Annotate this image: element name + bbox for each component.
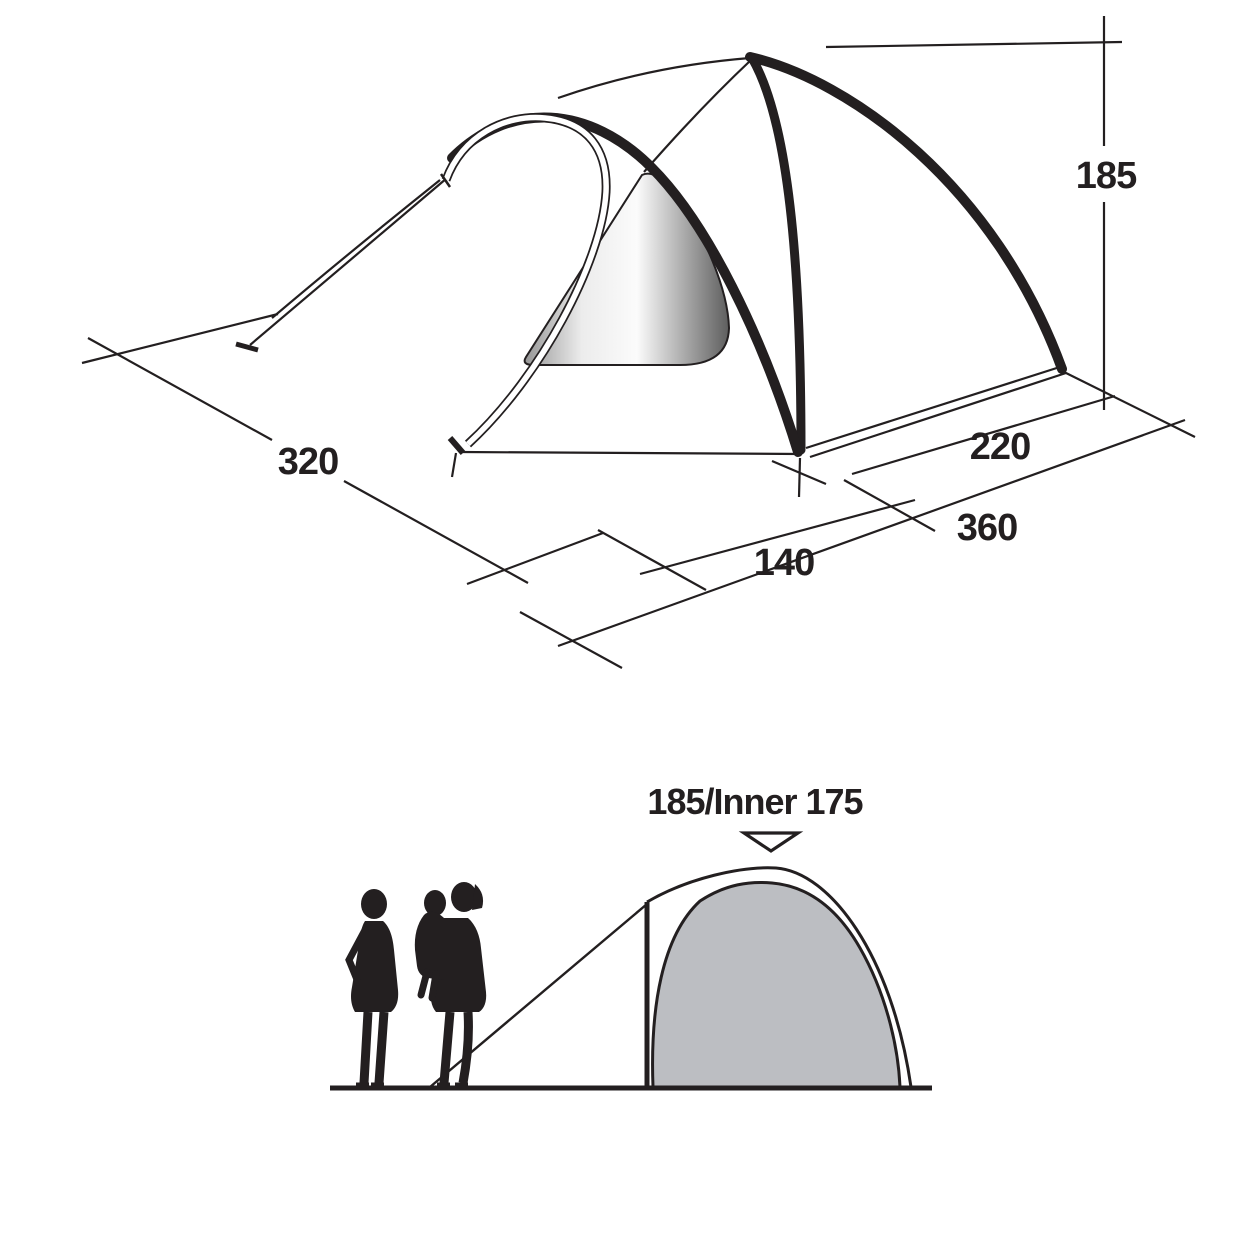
left-fabric-edge xyxy=(272,180,440,318)
child-head xyxy=(424,890,446,916)
dim-ext-360-right xyxy=(1062,371,1195,437)
person-silhouette-left xyxy=(349,889,398,1085)
guy-line xyxy=(250,178,447,345)
triangle-down-icon xyxy=(744,833,798,851)
profile-view xyxy=(330,833,932,1088)
dim-ext-320-rear xyxy=(82,314,278,363)
ground-peg xyxy=(236,344,258,350)
person-with-child-silhouette xyxy=(415,882,486,1085)
dim-label-320: 320 xyxy=(278,441,338,483)
dim-ext-320-front xyxy=(467,533,603,584)
front-foot-drop-line xyxy=(799,458,800,497)
front-bottom-edge xyxy=(460,452,800,454)
inner-tent-profile xyxy=(653,882,900,1087)
people-silhouettes xyxy=(349,882,486,1085)
dim-ext-140-right xyxy=(844,480,935,531)
child-legs xyxy=(421,972,436,998)
door-fold-line xyxy=(644,60,751,172)
dim-label-220: 220 xyxy=(970,426,1030,468)
dim-ext-360-left xyxy=(520,612,622,668)
profile-height-label: 185/Inner 175 xyxy=(647,781,863,822)
porch-foot-tick xyxy=(450,438,463,453)
porch-foot-drop-line xyxy=(452,453,456,477)
dim-label-185: 185 xyxy=(1076,155,1137,197)
tent-dimension-diagram-page: 320 140 360 220 185 xyxy=(0,0,1260,1260)
ridge-line xyxy=(558,58,750,98)
porch-pole-core xyxy=(446,118,606,444)
tent-dimension-diagram: 320 140 360 220 185 xyxy=(0,0,1260,1260)
adult-legs xyxy=(444,1012,468,1083)
dimension-labels: 320 140 360 220 185 xyxy=(278,155,1137,584)
dim-ref-top xyxy=(826,42,1122,47)
perspective-view xyxy=(82,16,1195,668)
porch-pole xyxy=(441,118,606,444)
legs xyxy=(364,1012,384,1083)
dim-label-360: 360 xyxy=(957,507,1017,549)
torso-dress xyxy=(351,921,398,1012)
dim-label-140: 140 xyxy=(754,542,814,584)
head xyxy=(361,889,387,919)
